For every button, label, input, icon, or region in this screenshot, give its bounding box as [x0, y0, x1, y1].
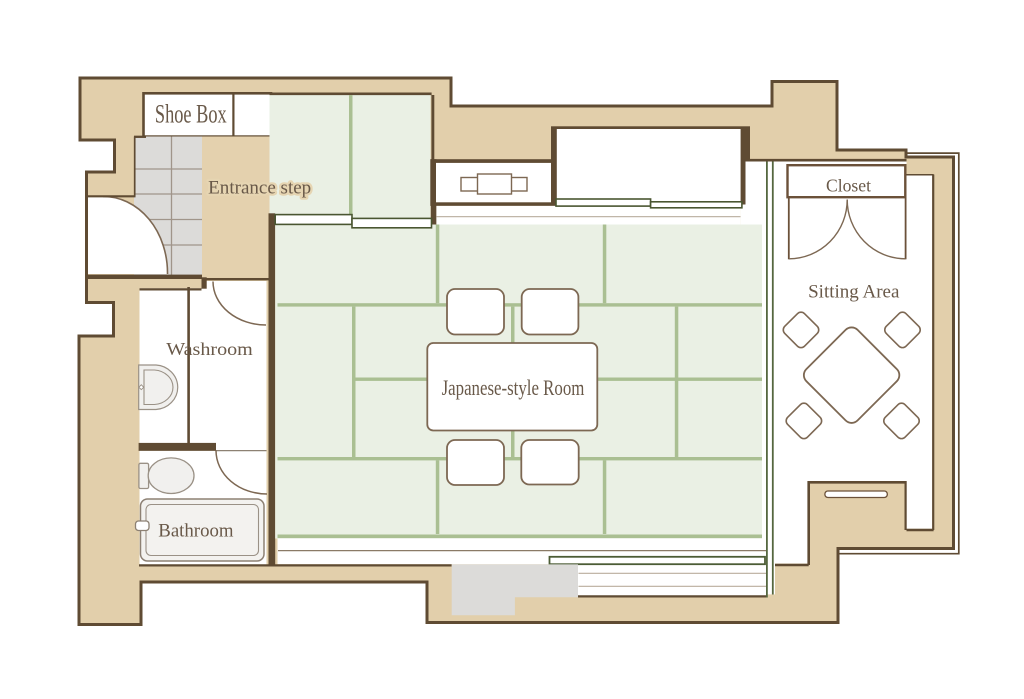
svg-text:Shoe Box: Shoe Box	[155, 98, 227, 128]
svg-text:Japanese-style Room: Japanese-style Room	[442, 375, 585, 400]
svg-text:Bathroom: Bathroom	[158, 521, 234, 542]
svg-text:Sitting Area: Sitting Area	[808, 282, 900, 303]
svg-text:Washroom: Washroom	[166, 339, 253, 359]
svg-text:Entrance step: Entrance step	[208, 178, 311, 199]
svg-text:Closet: Closet	[826, 175, 871, 195]
